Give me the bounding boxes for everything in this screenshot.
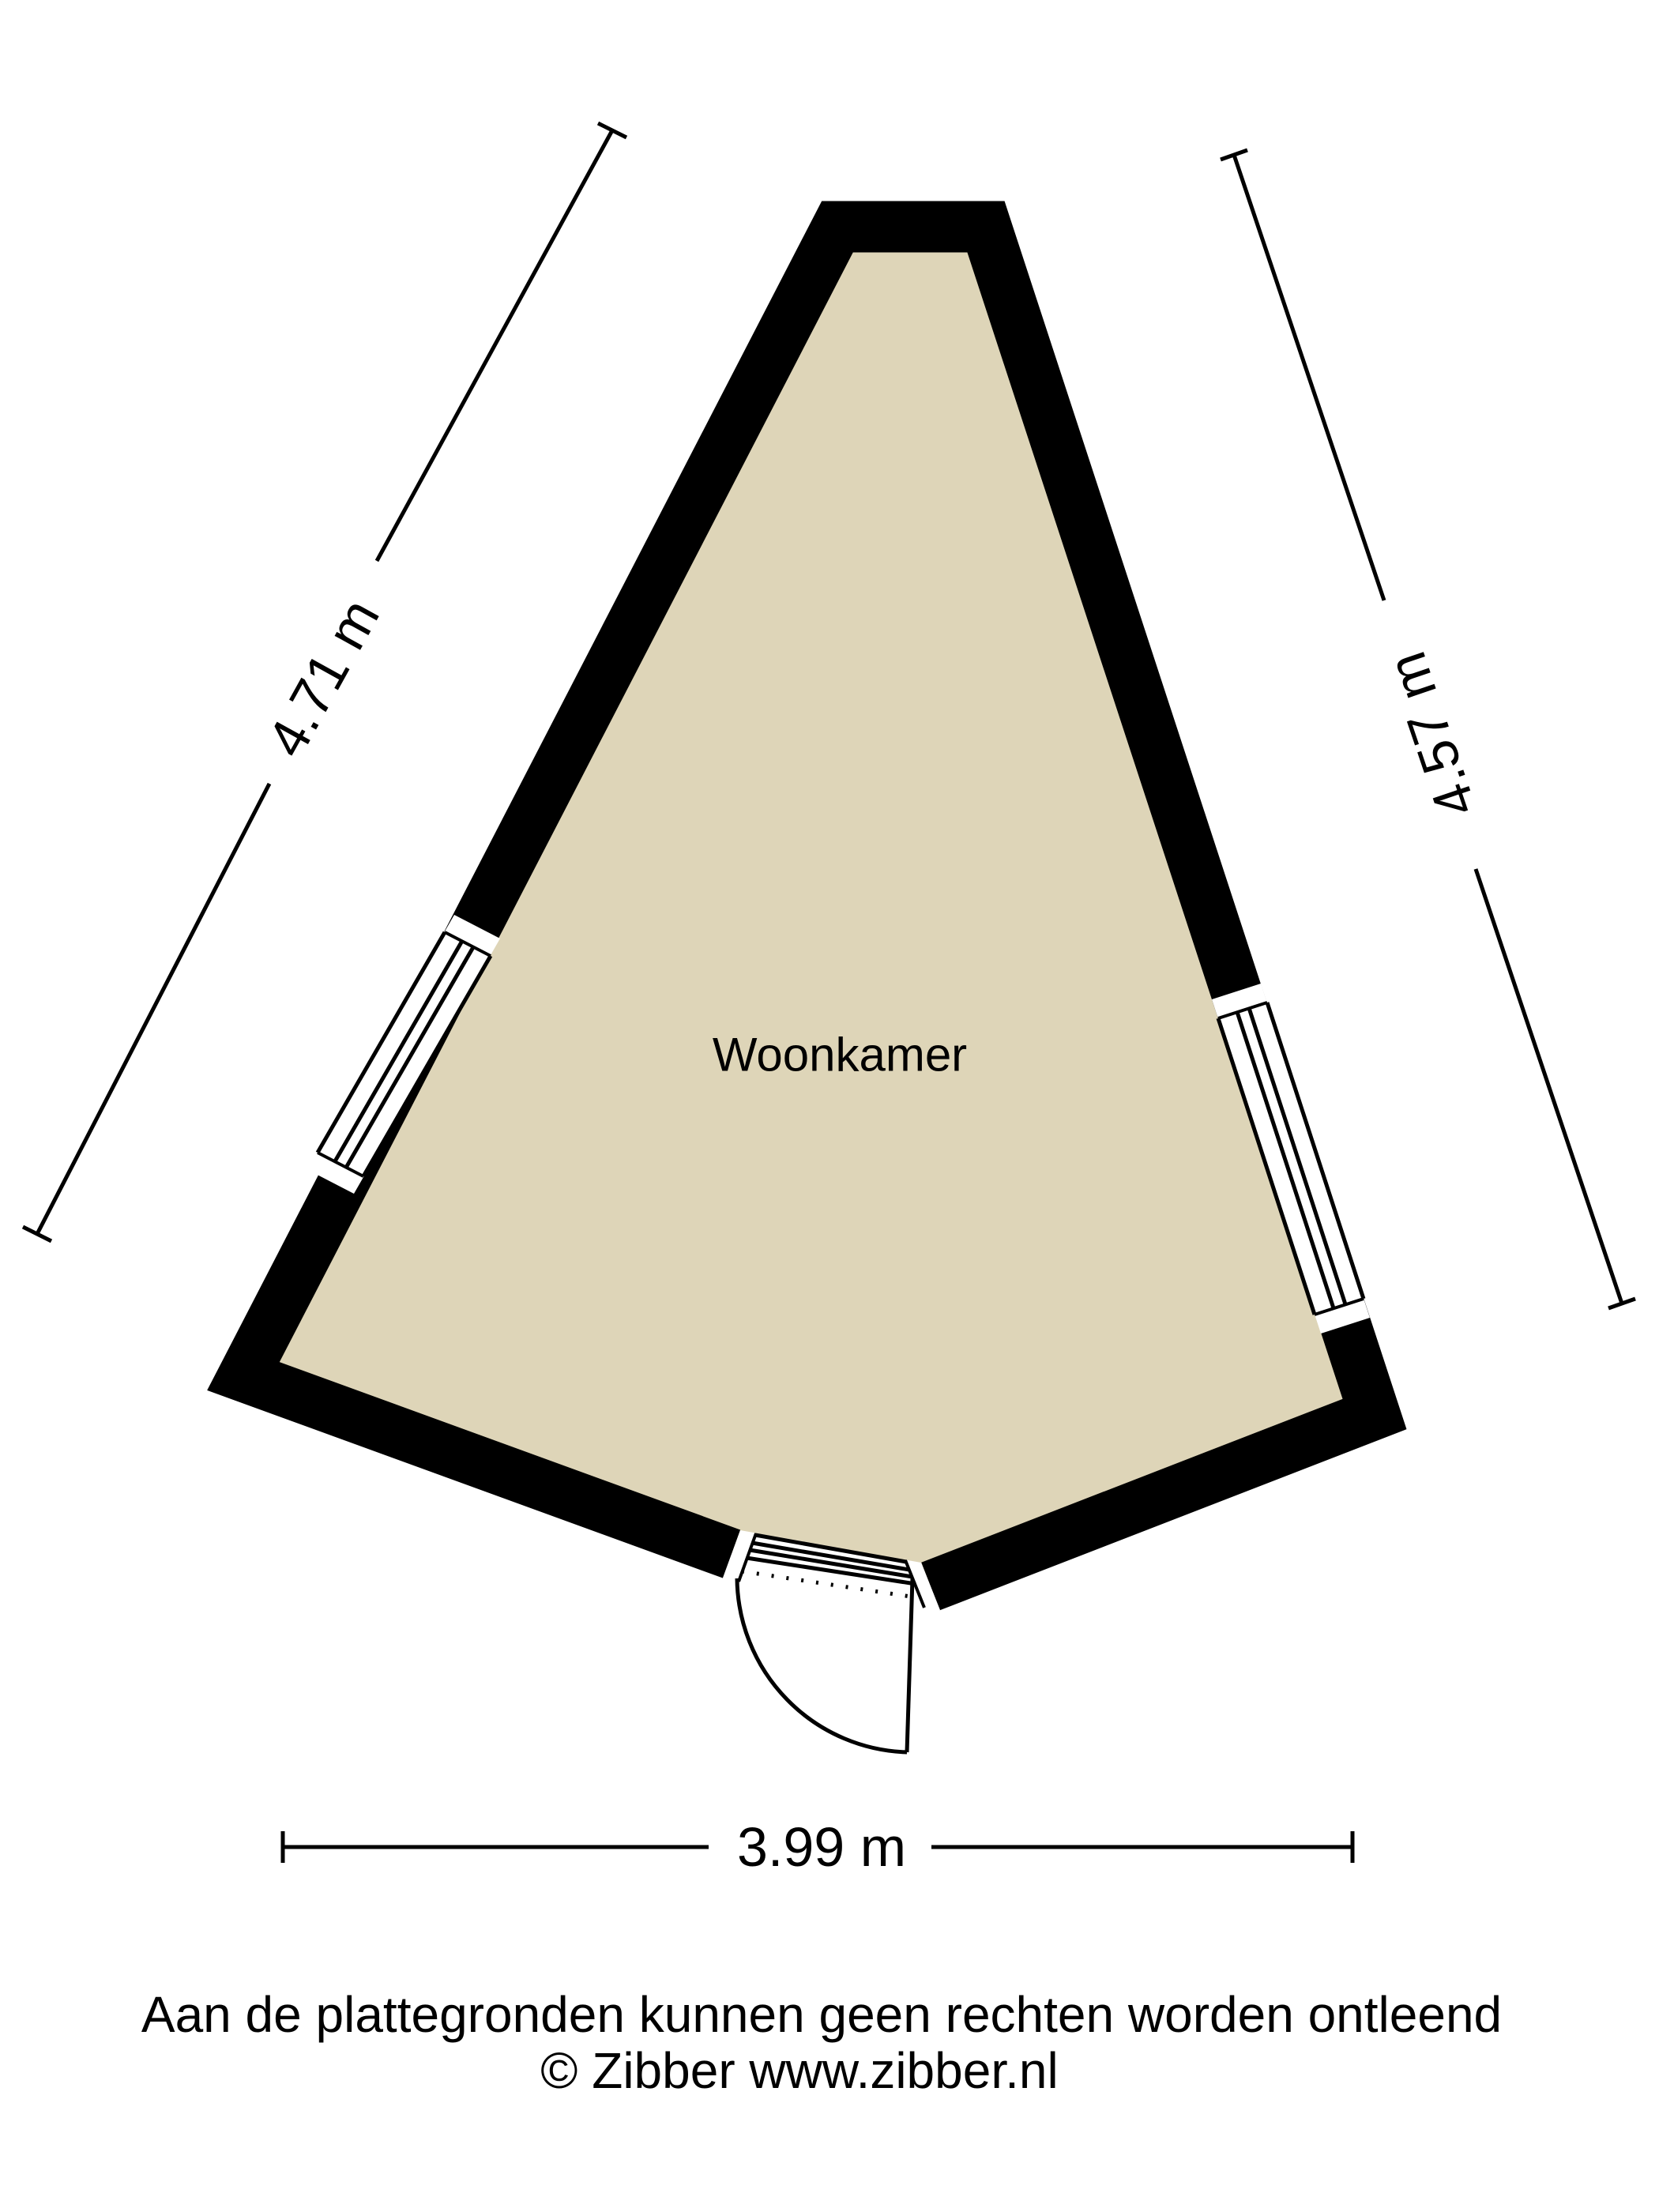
footer-disclaimer: Aan de plattegronden kunnen geen rechten…: [141, 1986, 1502, 2043]
floorplan-page: 4.71 m 4.57 m 3.99 m Woonkamer Aan de pl…: [0, 0, 1659, 2212]
footer-credit: © Zibber www.zibber.nl: [540, 2042, 1058, 2099]
dimension-label-bottom: 3.99 m: [737, 1816, 906, 1878]
room-label: Woonkamer: [713, 1029, 967, 1082]
floorplan-svg: 4.71 m 4.57 m 3.99 m Woonkamer Aan de pl…: [0, 0, 1659, 2212]
